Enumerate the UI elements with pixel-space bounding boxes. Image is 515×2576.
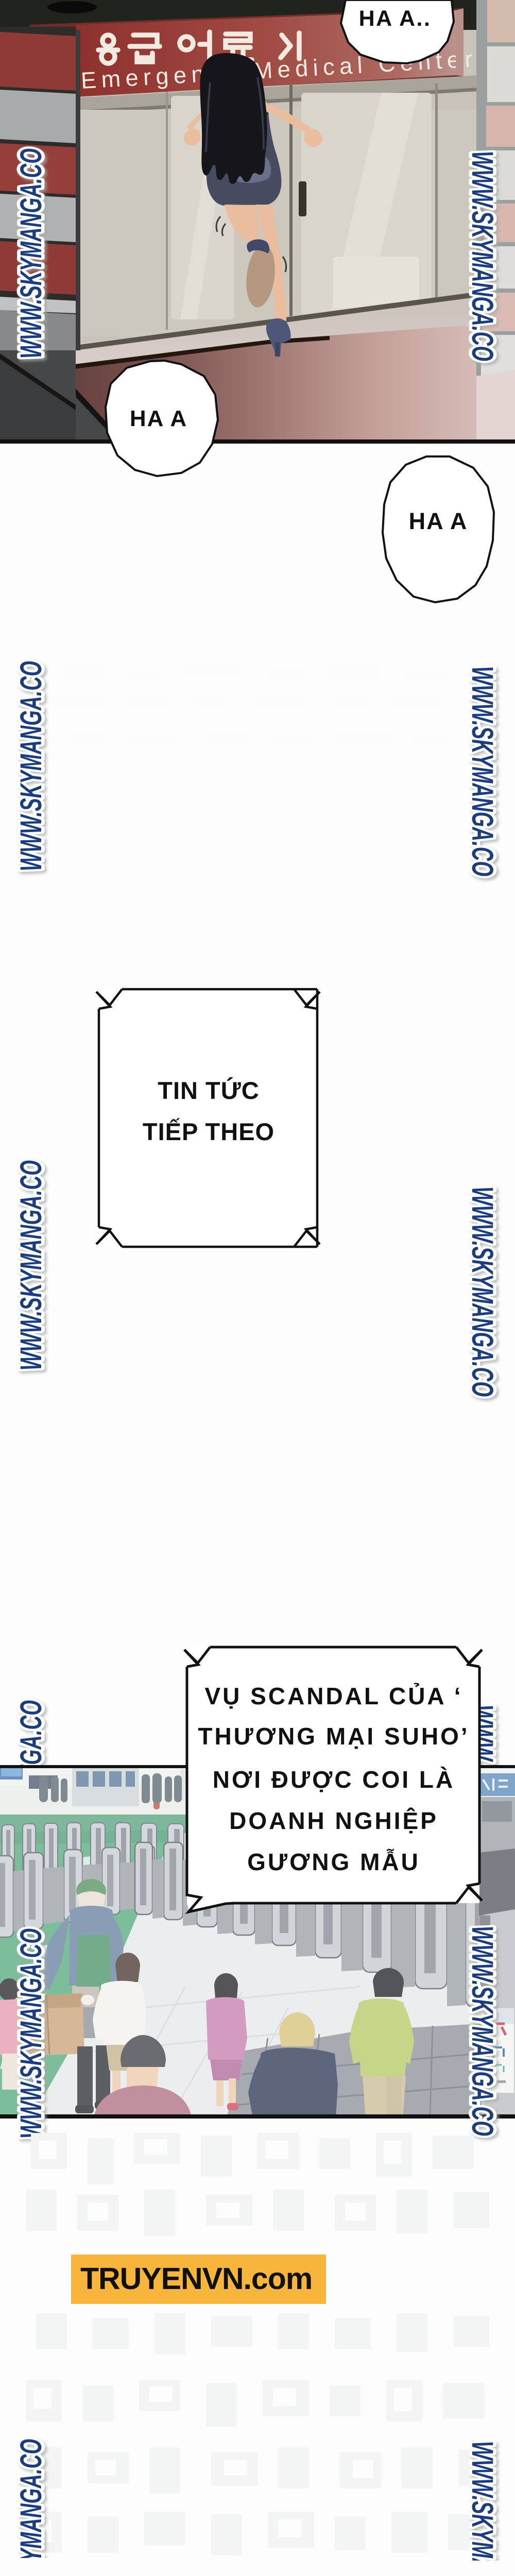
- svg-text:TIẾP THEO: TIẾP THEO: [143, 1118, 274, 1145]
- svg-text:TIN TỨC: TIN TỨC: [158, 1077, 259, 1104]
- svg-text:HA A: HA A: [409, 508, 468, 534]
- svg-text:DOANH NGHIỆP: DOANH NGHIỆP: [229, 1807, 438, 1834]
- svg-text:THƯƠNG MẠI SUHO’: THƯƠNG MẠI SUHO’: [198, 1723, 469, 1750]
- svg-text:HA A..: HA A..: [359, 6, 432, 31]
- svg-text:NƠI ĐƯỢC COI LÀ: NƠI ĐƯỢC COI LÀ: [213, 1766, 455, 1793]
- svg-text:HA A: HA A: [130, 406, 187, 431]
- svg-text:VỤ SCANDAL CỦA ‘: VỤ SCANDAL CỦA ‘: [204, 1683, 462, 1709]
- svg-text:GƯƠNG MẪU: GƯƠNG MẪU: [247, 1849, 420, 1875]
